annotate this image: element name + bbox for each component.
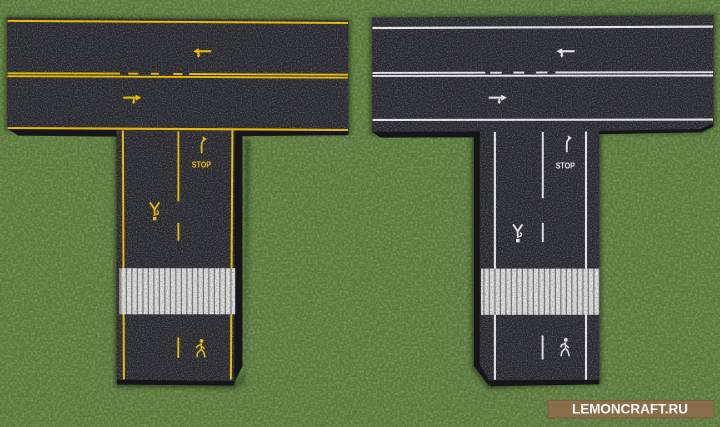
- svg-text:LEMONCRAFT.RU: LEMONCRAFT.RU: [572, 402, 688, 417]
